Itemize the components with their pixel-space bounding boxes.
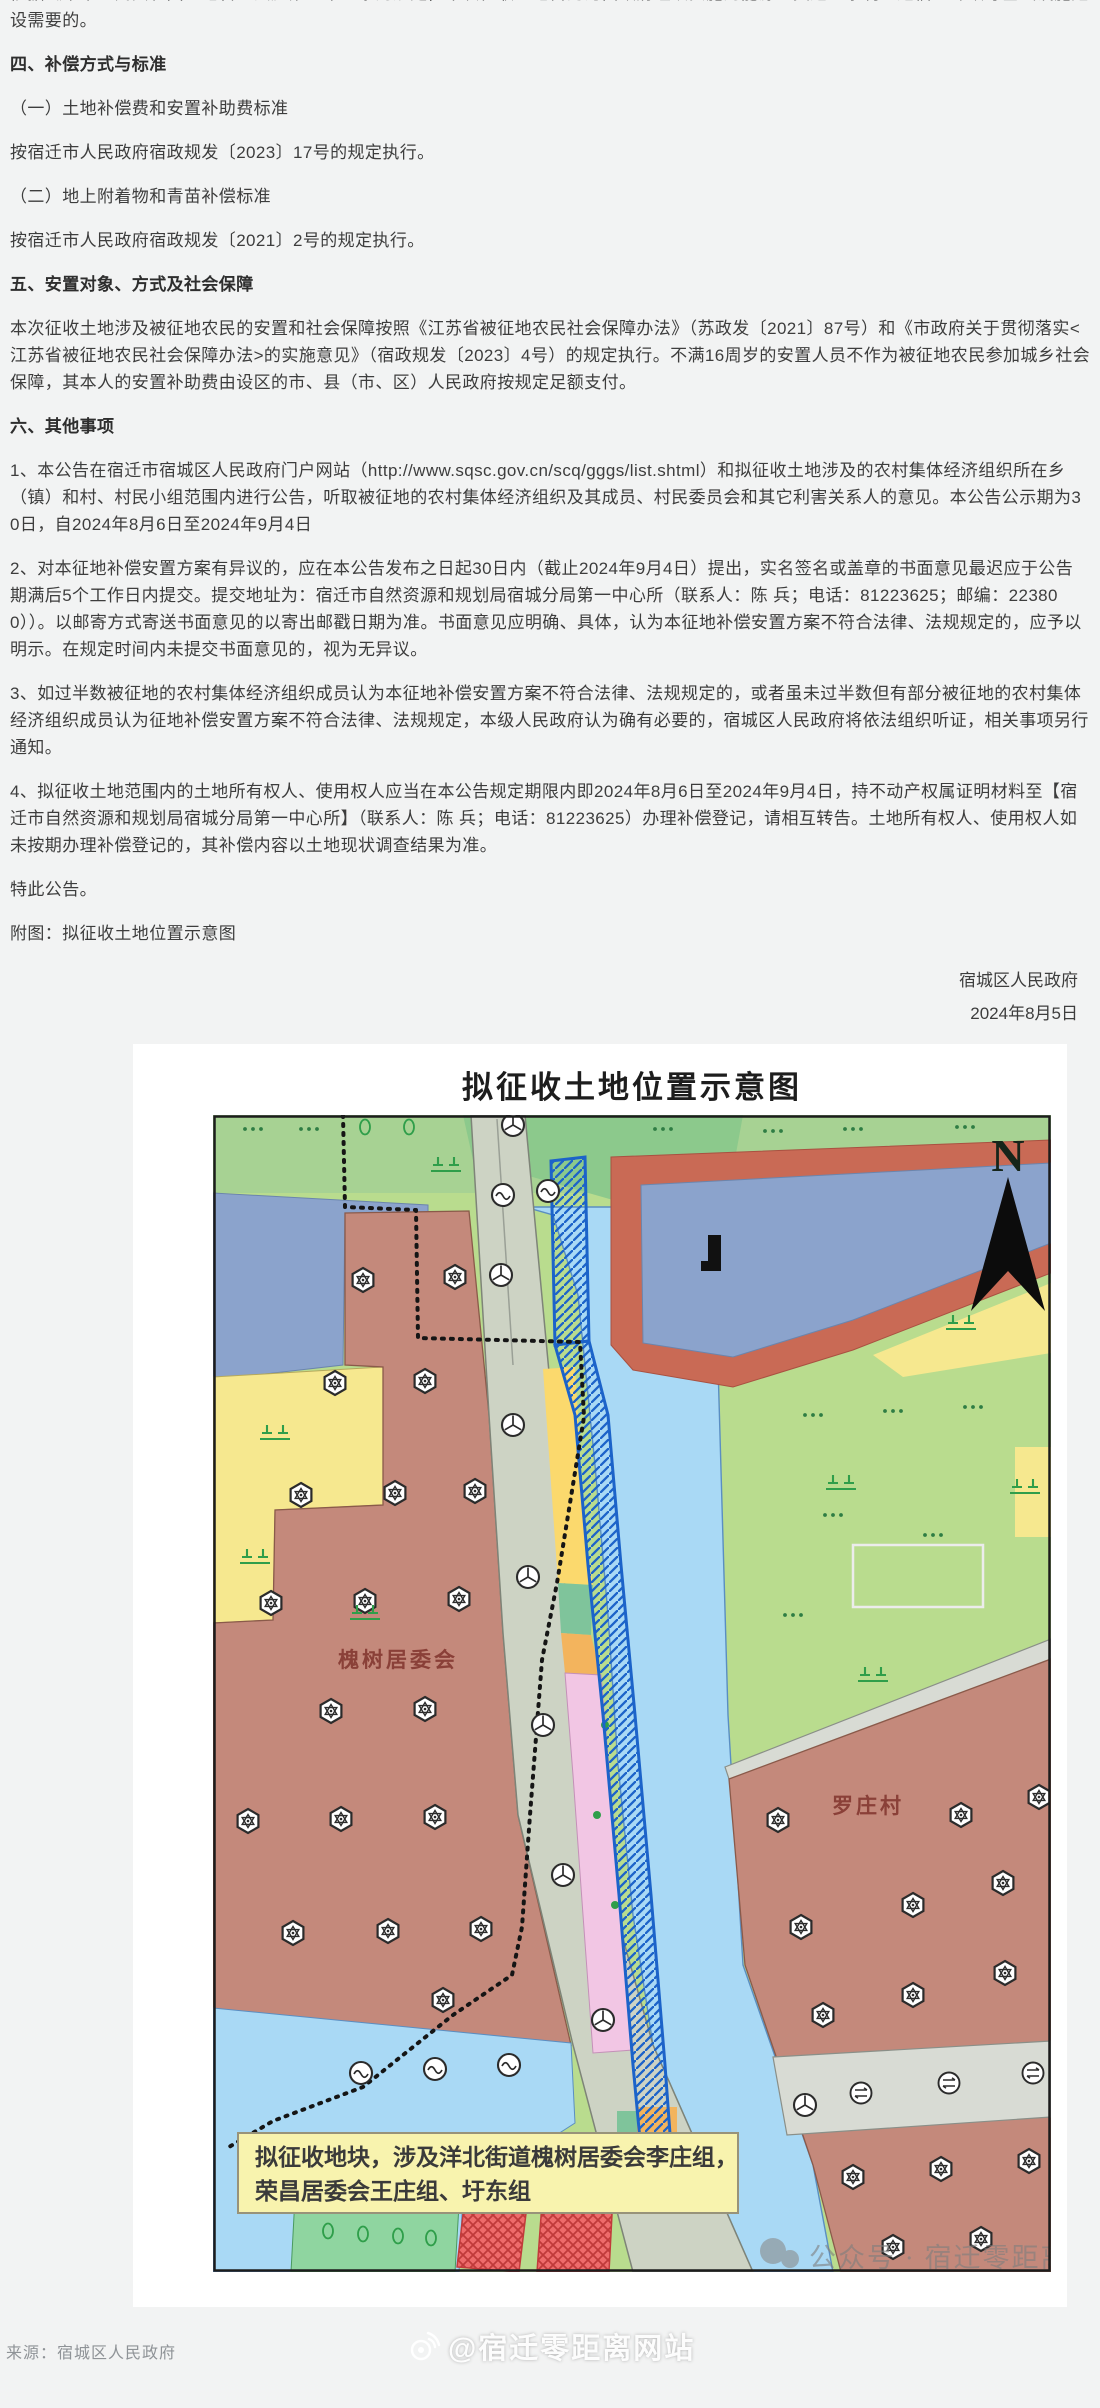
paragraph: 4、拟征收土地范围内的土地所有权人、使用权人应当在本公告规定期限内即2024年8… — [10, 778, 1090, 859]
village-label-right: 罗庄村 — [832, 1794, 904, 1818]
paragraph: 1、本公告在宿迁市宿城区人民政府门户网站（http://www.sqsc.gov… — [10, 457, 1090, 538]
weibo-watermark-text: @宿迁零距离网站 — [448, 2325, 695, 2367]
section-6-heading: 六、其他事项 — [10, 413, 1090, 440]
compass-letter: N — [991, 1130, 1024, 1181]
village-label-left: 槐树居委会 — [337, 1648, 458, 1672]
signature-date: 2024年8月5日 — [10, 997, 1078, 1030]
paragraph: （二）地上附着物和青苗补偿标准 — [10, 183, 1090, 210]
intro-paragraph: 依据《中华人民共和国土地管理法》第四十五条的规定，本次征收土地目的为由政府组织实… — [10, 0, 1090, 34]
land-map: 槐树居委会 罗庄村 拟征收地块，涉及洋北街道槐树居委会李庄组， 荣昌居委会王庄组… — [213, 1115, 1051, 2277]
section-4-heading: 四、补偿方式与标准 — [10, 51, 1090, 78]
weibo-icon — [408, 2330, 442, 2362]
map-outlined-parcel — [853, 1545, 983, 1607]
paragraph: 按宿迁市人民政府宿政规发〔2023〕17号的规定执行。 — [10, 139, 1090, 166]
map-watermark-text: 公众号 · 宿迁零距离 — [809, 2243, 1051, 2272]
closing-line: 特此公告。 — [10, 876, 1090, 903]
map-figure: 拟征收土地位置示意图 — [133, 1044, 1067, 2307]
note-line-2: 荣昌居委会王庄组、圩东组 — [254, 2178, 531, 2204]
map-canvas: 槐树居委会 罗庄村 拟征收地块，涉及洋北街道槐树居委会李庄组， 荣昌居委会王庄组… — [213, 1115, 1051, 2272]
paragraph: 按宿迁市人民政府宿政规发〔2021〕2号的规定执行。 — [10, 227, 1090, 254]
note-line-1: 拟征收地块，涉及洋北街道槐树居委会李庄组， — [255, 2144, 738, 2170]
weibo-watermark: @宿迁零距离网站 — [408, 2325, 695, 2367]
notice-document: 依据《中华人民共和国土地管理法》第四十五条的规定，本次征收土地目的为由政府组织实… — [0, 0, 1100, 1030]
section-5-heading: 五、安置对象、方式及社会保障 — [10, 271, 1090, 298]
map-note-box: 拟征收地块，涉及洋北街道槐树居委会李庄组， 荣昌居委会王庄组、圩东组 — [238, 2133, 738, 2213]
map-strip-teal — [558, 1583, 593, 1635]
page-footer: 来源：宿城区人民政府 @宿迁零距离网站 — [0, 2307, 1100, 2369]
paragraph: 3、如过半数被征地的农村集体经济组织成员认为本征地补偿安置方案不符合法律、法规规… — [10, 680, 1090, 761]
signature-block: 宿城区人民政府 2024年8月5日 — [10, 964, 1090, 1030]
paragraph: 2、对本征地补偿安置方案有异议的，应在本公告发布之日起30日内（截止2024年9… — [10, 555, 1090, 663]
paragraph: （一）土地补偿费和安置补助费标准 — [10, 95, 1090, 122]
paragraph: 本次征收土地涉及被征地农民的安置和社会保障按照《江苏省被征地农民社会保障办法》（… — [10, 315, 1090, 396]
source-line: 来源：宿城区人民政府 — [6, 2339, 176, 2363]
attachment-note: 附图：拟征收土地位置示意图 — [10, 920, 1090, 947]
signature-authority: 宿城区人民政府 — [10, 964, 1078, 997]
map-title: 拟征收土地位置示意图 — [213, 1058, 1051, 1115]
